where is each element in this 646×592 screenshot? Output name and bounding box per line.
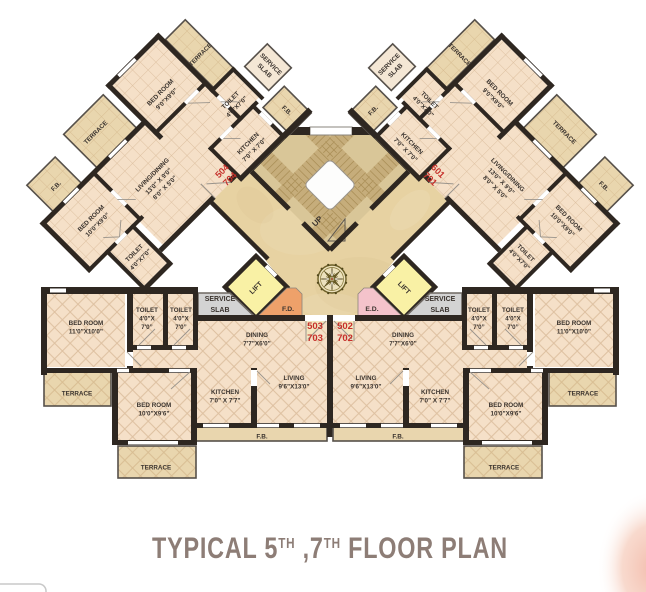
svg-text:TOILET: TOILET: [502, 307, 524, 314]
svg-text:TERRACE: TERRACE: [62, 390, 92, 397]
svg-text:7'0”: 7'0”: [507, 324, 518, 331]
svg-text:7'0”: 7'0”: [175, 324, 186, 331]
svg-text:TERRACE: TERRACE: [568, 390, 598, 397]
svg-text:F.B.: F.B.: [256, 433, 268, 440]
svg-text:F.B.: F.B.: [392, 433, 404, 440]
svg-text:503: 503: [307, 321, 323, 332]
svg-text:703: 703: [307, 333, 323, 344]
svg-text:DINING: DINING: [392, 332, 414, 339]
svg-text:11'0”X10'0”: 11'0”X10'0”: [69, 329, 103, 336]
svg-text:SERVICE: SERVICE: [425, 296, 456, 303]
svg-text:KITCHEN: KITCHEN: [421, 389, 449, 396]
svg-text:LIVING: LIVING: [356, 375, 377, 382]
svg-text:7'0”: 7'0”: [141, 324, 152, 331]
svg-text:BED ROOM: BED ROOM: [69, 320, 104, 327]
svg-text:BED ROOM: BED ROOM: [489, 402, 524, 409]
svg-text:F.D.: F.D.: [282, 306, 294, 313]
svg-text:4'0”X: 4'0”X: [139, 315, 155, 322]
svg-text:TERRACE: TERRACE: [141, 464, 171, 471]
svg-text:TERRACE: TERRACE: [489, 464, 519, 471]
svg-text:BED ROOM: BED ROOM: [557, 320, 592, 327]
svg-text:TOILET: TOILET: [468, 307, 490, 314]
svg-text:10'0”X9'6”: 10'0”X9'6”: [138, 411, 169, 418]
svg-text:4'0”X: 4'0”X: [505, 315, 521, 322]
svg-text:TOILET: TOILET: [136, 307, 158, 314]
svg-text:4'0”X: 4'0”X: [173, 315, 189, 322]
svg-text:7'0” X 7'7”: 7'0” X 7'7”: [420, 398, 451, 405]
svg-text:SERVICE: SERVICE: [205, 296, 236, 303]
svg-text:SLAB: SLAB: [210, 307, 229, 314]
svg-text:4'0”X: 4'0”X: [471, 315, 487, 322]
svg-text:LIVING: LIVING: [284, 375, 305, 382]
svg-text:7'7”X6'0”: 7'7”X6'0”: [243, 341, 271, 348]
svg-text:SLAB: SLAB: [430, 307, 449, 314]
svg-text:7'7”X6'0”: 7'7”X6'0”: [389, 341, 417, 348]
svg-text:9'6”X13'0”: 9'6”X13'0”: [350, 384, 381, 391]
svg-text:502: 502: [337, 321, 353, 332]
svg-text:TOILET: TOILET: [170, 307, 192, 314]
svg-text:9'6”X13'0”: 9'6”X13'0”: [278, 384, 309, 391]
svg-text:702: 702: [337, 333, 353, 344]
svg-text:11'0”X10'0”: 11'0”X10'0”: [557, 329, 591, 336]
svg-text:KITCHEN: KITCHEN: [211, 389, 239, 396]
svg-text:7'0” X 7'7”: 7'0” X 7'7”: [210, 398, 241, 405]
svg-text:E.D.: E.D.: [365, 306, 378, 313]
svg-text:7'0”: 7'0”: [473, 324, 484, 331]
svg-text:DINING: DINING: [246, 332, 268, 339]
svg-text:BED ROOM: BED ROOM: [137, 402, 172, 409]
svg-text:10'0”X9'6”: 10'0”X9'6”: [490, 411, 521, 418]
